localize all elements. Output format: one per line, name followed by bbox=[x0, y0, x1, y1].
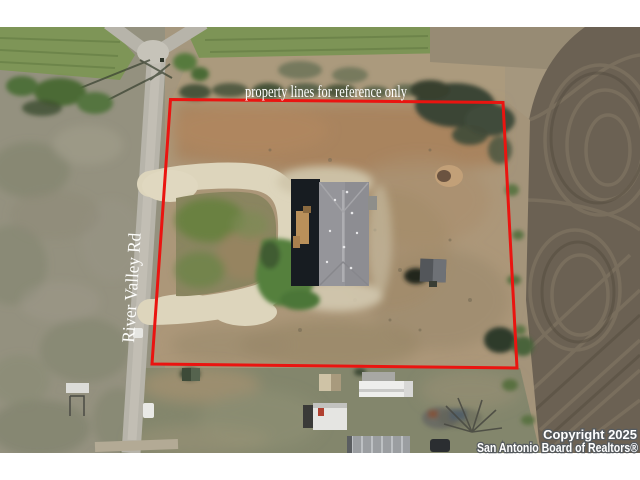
svg-text:San Antonio Board of Realtors®: San Antonio Board of Realtors® bbox=[477, 440, 638, 455]
svg-text:property lines for reference o: property lines for reference only bbox=[245, 82, 407, 101]
